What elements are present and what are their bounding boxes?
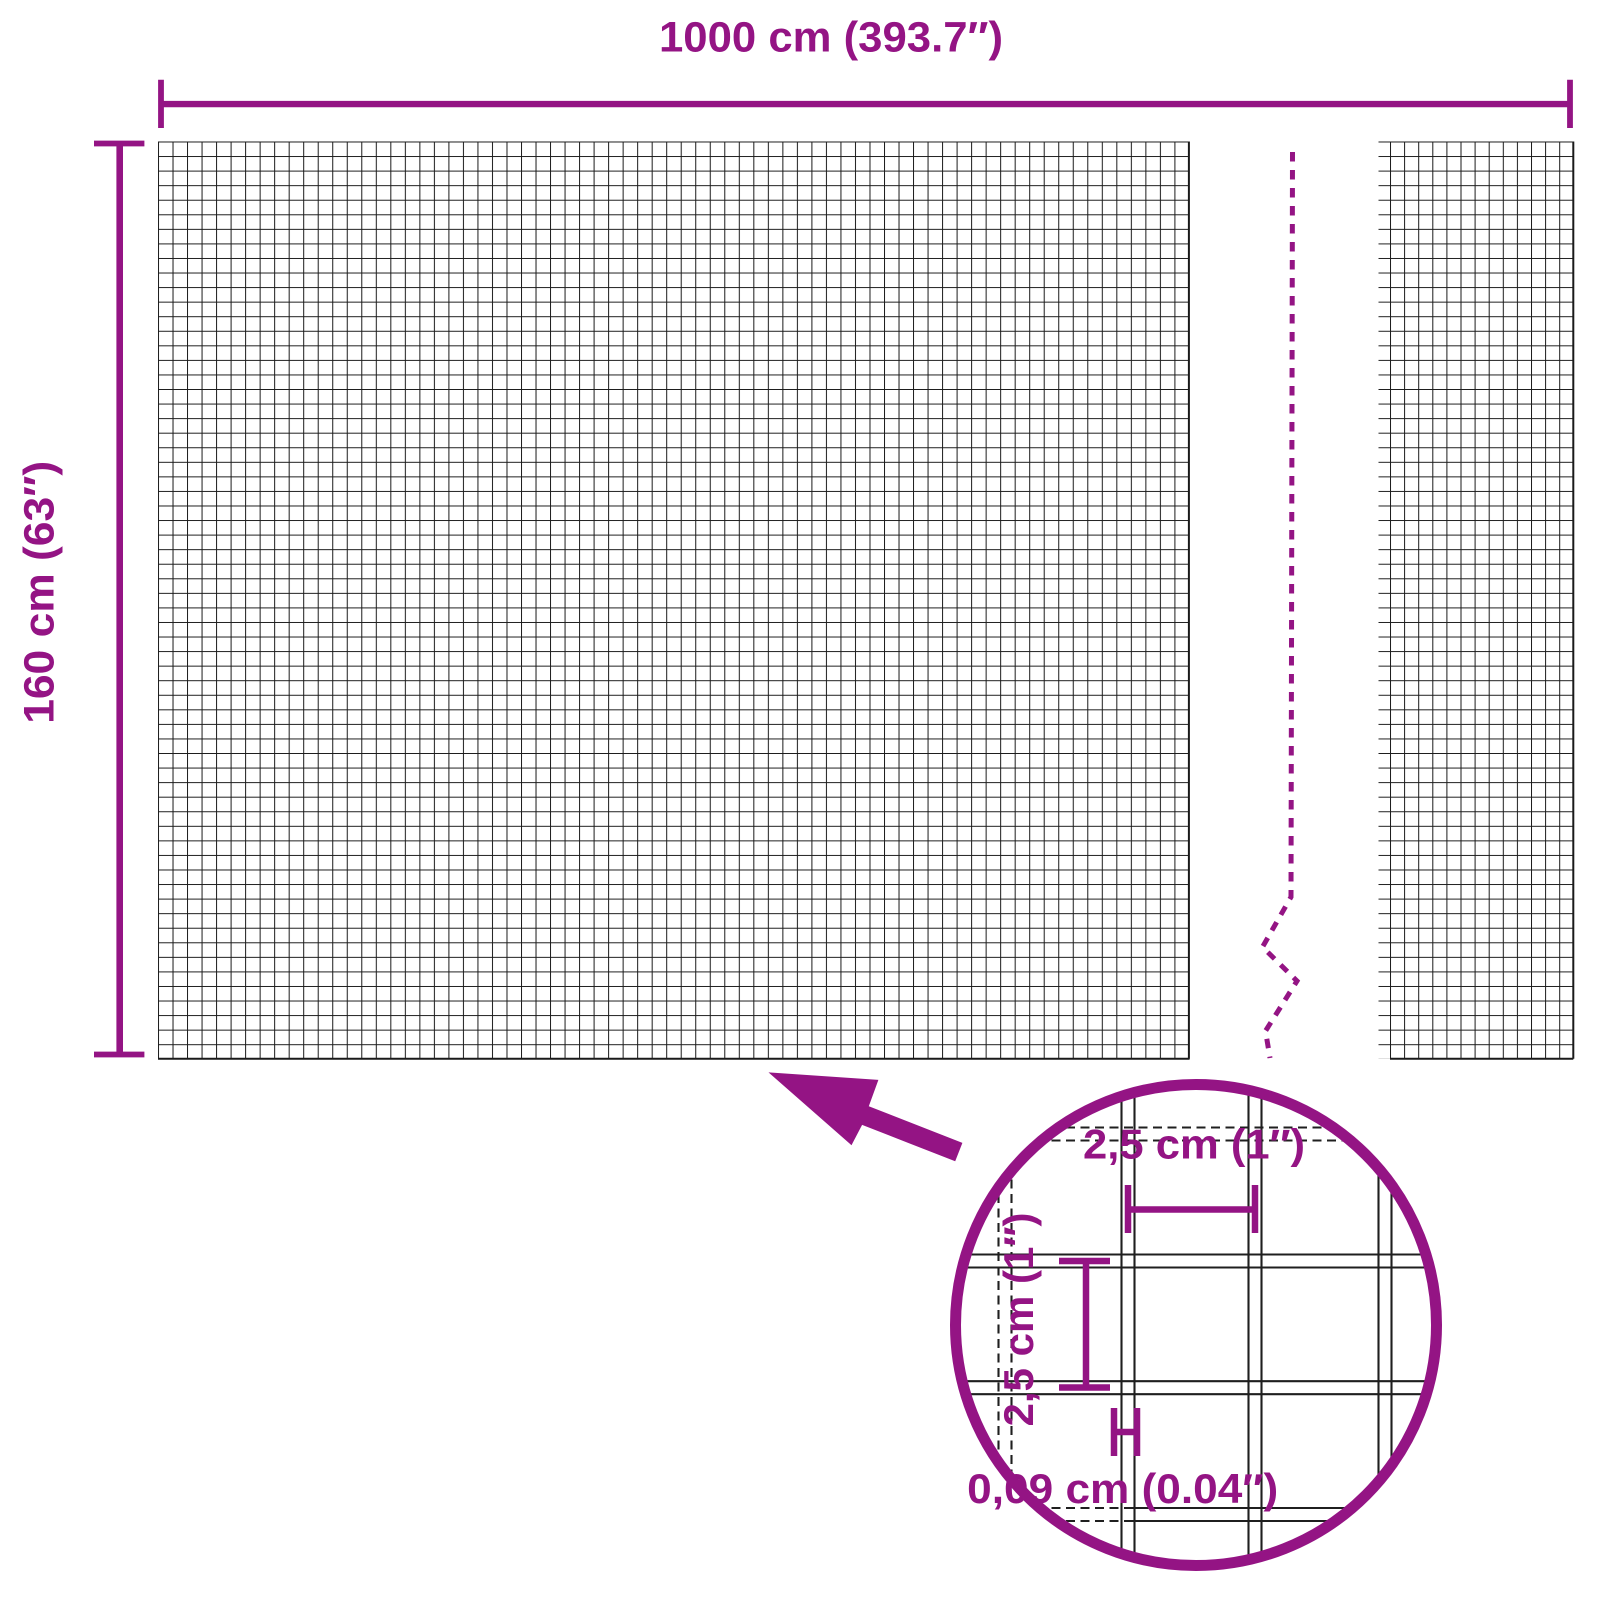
svg-text:2,5 cm (1″): 2,5 cm (1″) xyxy=(995,1213,1042,1427)
svg-text:160 cm (63″): 160 cm (63″) xyxy=(16,461,64,724)
svg-text:2,5 cm (1″): 2,5 cm (1″) xyxy=(1083,1121,1305,1168)
svg-text:1000 cm (393.7″): 1000 cm (393.7″) xyxy=(659,14,1003,62)
